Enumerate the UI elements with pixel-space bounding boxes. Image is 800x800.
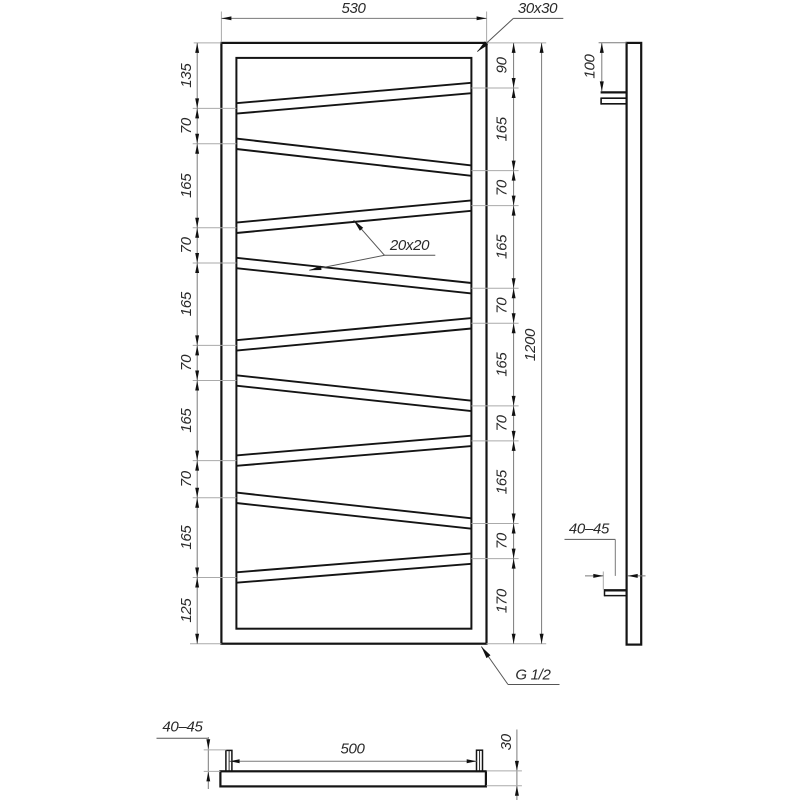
svg-text:170: 170 (494, 588, 511, 613)
svg-text:135: 135 (178, 63, 195, 88)
svg-text:70: 70 (494, 532, 511, 549)
svg-text:165: 165 (494, 234, 511, 259)
svg-text:500: 500 (340, 741, 365, 758)
svg-text:70: 70 (178, 236, 195, 253)
svg-text:30x30: 30x30 (518, 0, 558, 17)
svg-text:165: 165 (494, 469, 511, 494)
svg-text:165: 165 (178, 525, 195, 550)
svg-text:165: 165 (494, 352, 511, 377)
svg-text:70: 70 (494, 179, 511, 196)
svg-text:20x20: 20x20 (389, 237, 430, 254)
svg-text:G 1/2: G 1/2 (515, 667, 551, 684)
svg-text:100: 100 (581, 53, 598, 78)
svg-text:165: 165 (178, 173, 195, 198)
svg-text:90: 90 (494, 56, 511, 73)
svg-text:165: 165 (494, 116, 511, 141)
svg-text:70: 70 (494, 414, 511, 431)
svg-text:125: 125 (178, 598, 195, 623)
svg-text:70: 70 (178, 470, 195, 487)
svg-text:165: 165 (178, 408, 195, 433)
svg-text:40–45: 40–45 (569, 521, 610, 538)
svg-text:70: 70 (178, 354, 195, 371)
svg-text:40–45: 40–45 (162, 719, 203, 736)
svg-text:70: 70 (178, 117, 195, 134)
svg-text:530: 530 (341, 0, 366, 17)
svg-text:30: 30 (498, 733, 515, 750)
svg-text:70: 70 (494, 297, 511, 314)
svg-text:1200: 1200 (522, 328, 539, 361)
svg-text:165: 165 (178, 291, 195, 316)
